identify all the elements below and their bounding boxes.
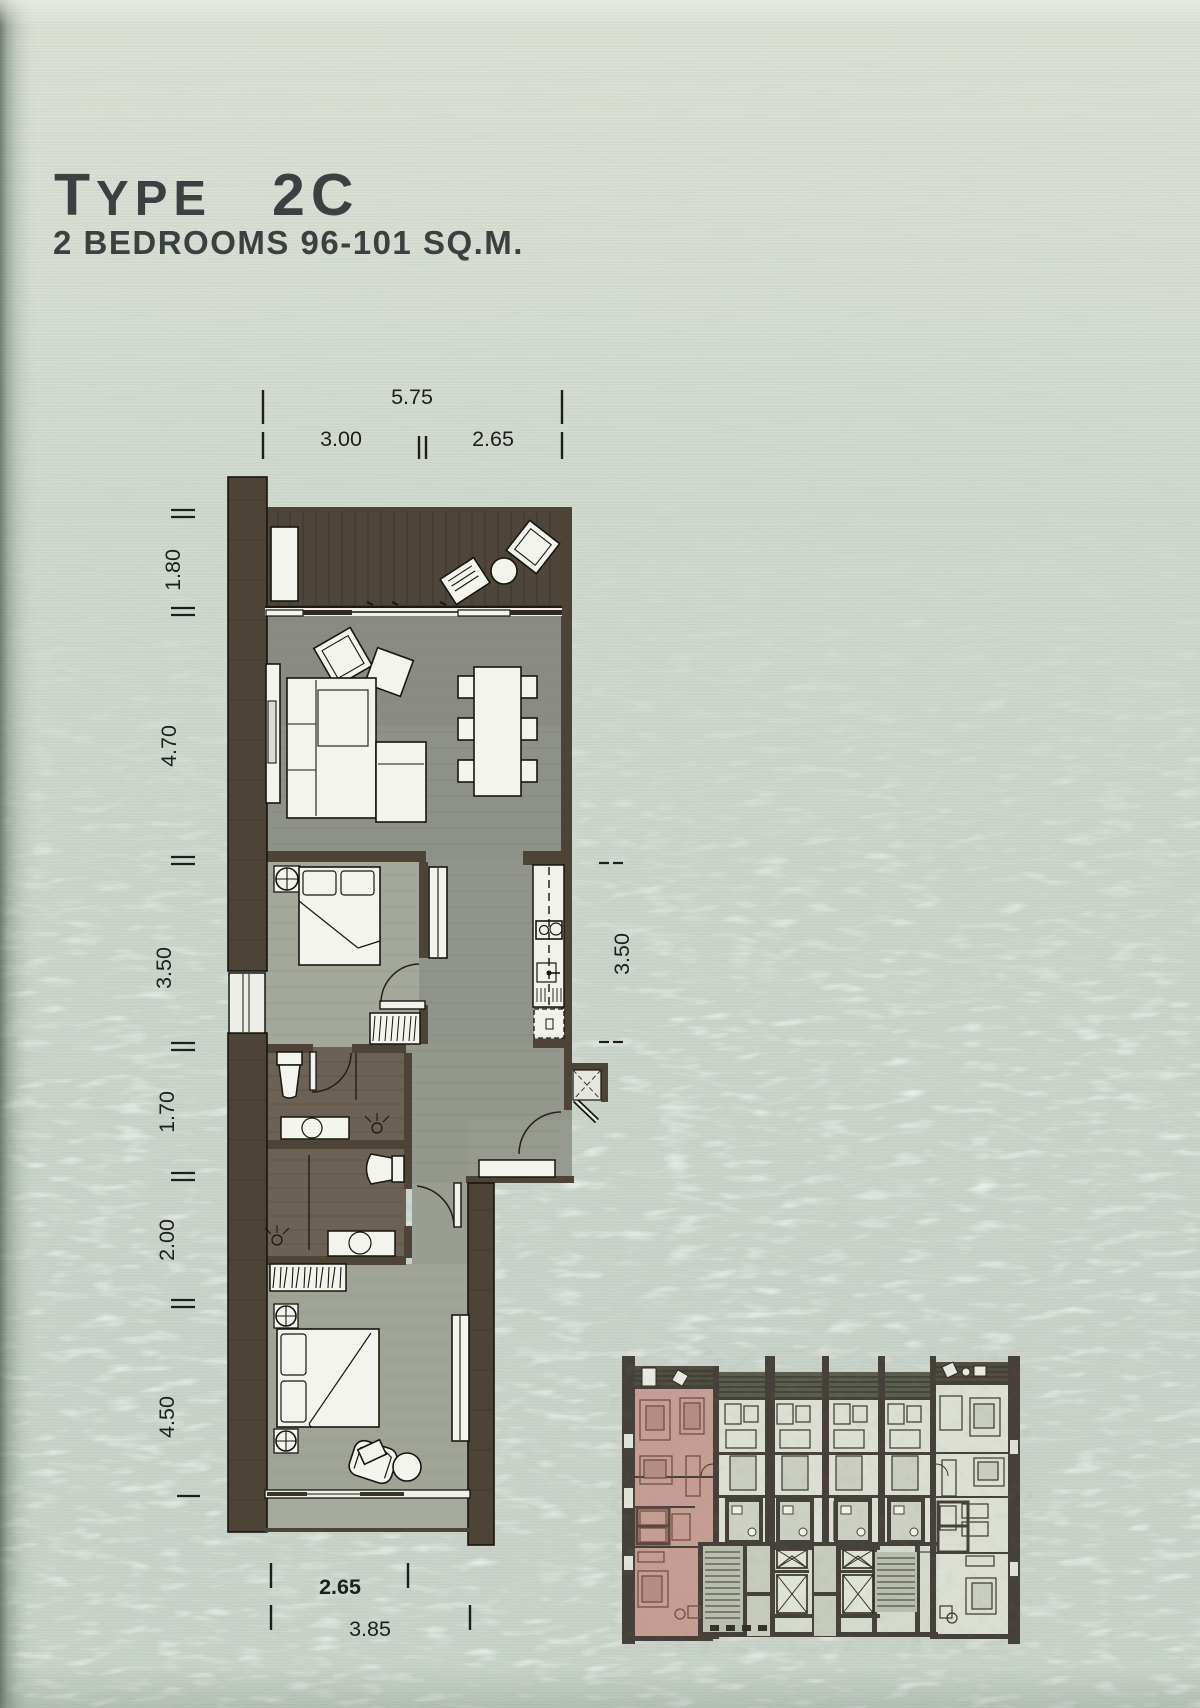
svg-text:4.50: 4.50 (155, 1396, 179, 1438)
svg-text:3.85: 3.85 (349, 1617, 391, 1641)
svg-text:2C: 2C (272, 162, 359, 228)
svg-text:3.00: 3.00 (320, 427, 362, 451)
svg-text:TYPE: TYPE (54, 162, 212, 228)
svg-text:5.75: 5.75 (391, 385, 433, 409)
svg-text:1.80: 1.80 (161, 549, 185, 591)
svg-text:2.00: 2.00 (155, 1219, 179, 1261)
svg-text:3.50: 3.50 (152, 947, 176, 989)
svg-text:2 BEDROOMS 96-101 SQ.M.: 2 BEDROOMS 96-101 SQ.M. (53, 224, 524, 261)
svg-text:1.70: 1.70 (155, 1091, 179, 1133)
svg-text:4.70: 4.70 (157, 725, 181, 767)
svg-text:2.65: 2.65 (472, 427, 514, 451)
svg-text:3.50: 3.50 (610, 933, 634, 975)
svg-text:2.65: 2.65 (319, 1575, 361, 1599)
